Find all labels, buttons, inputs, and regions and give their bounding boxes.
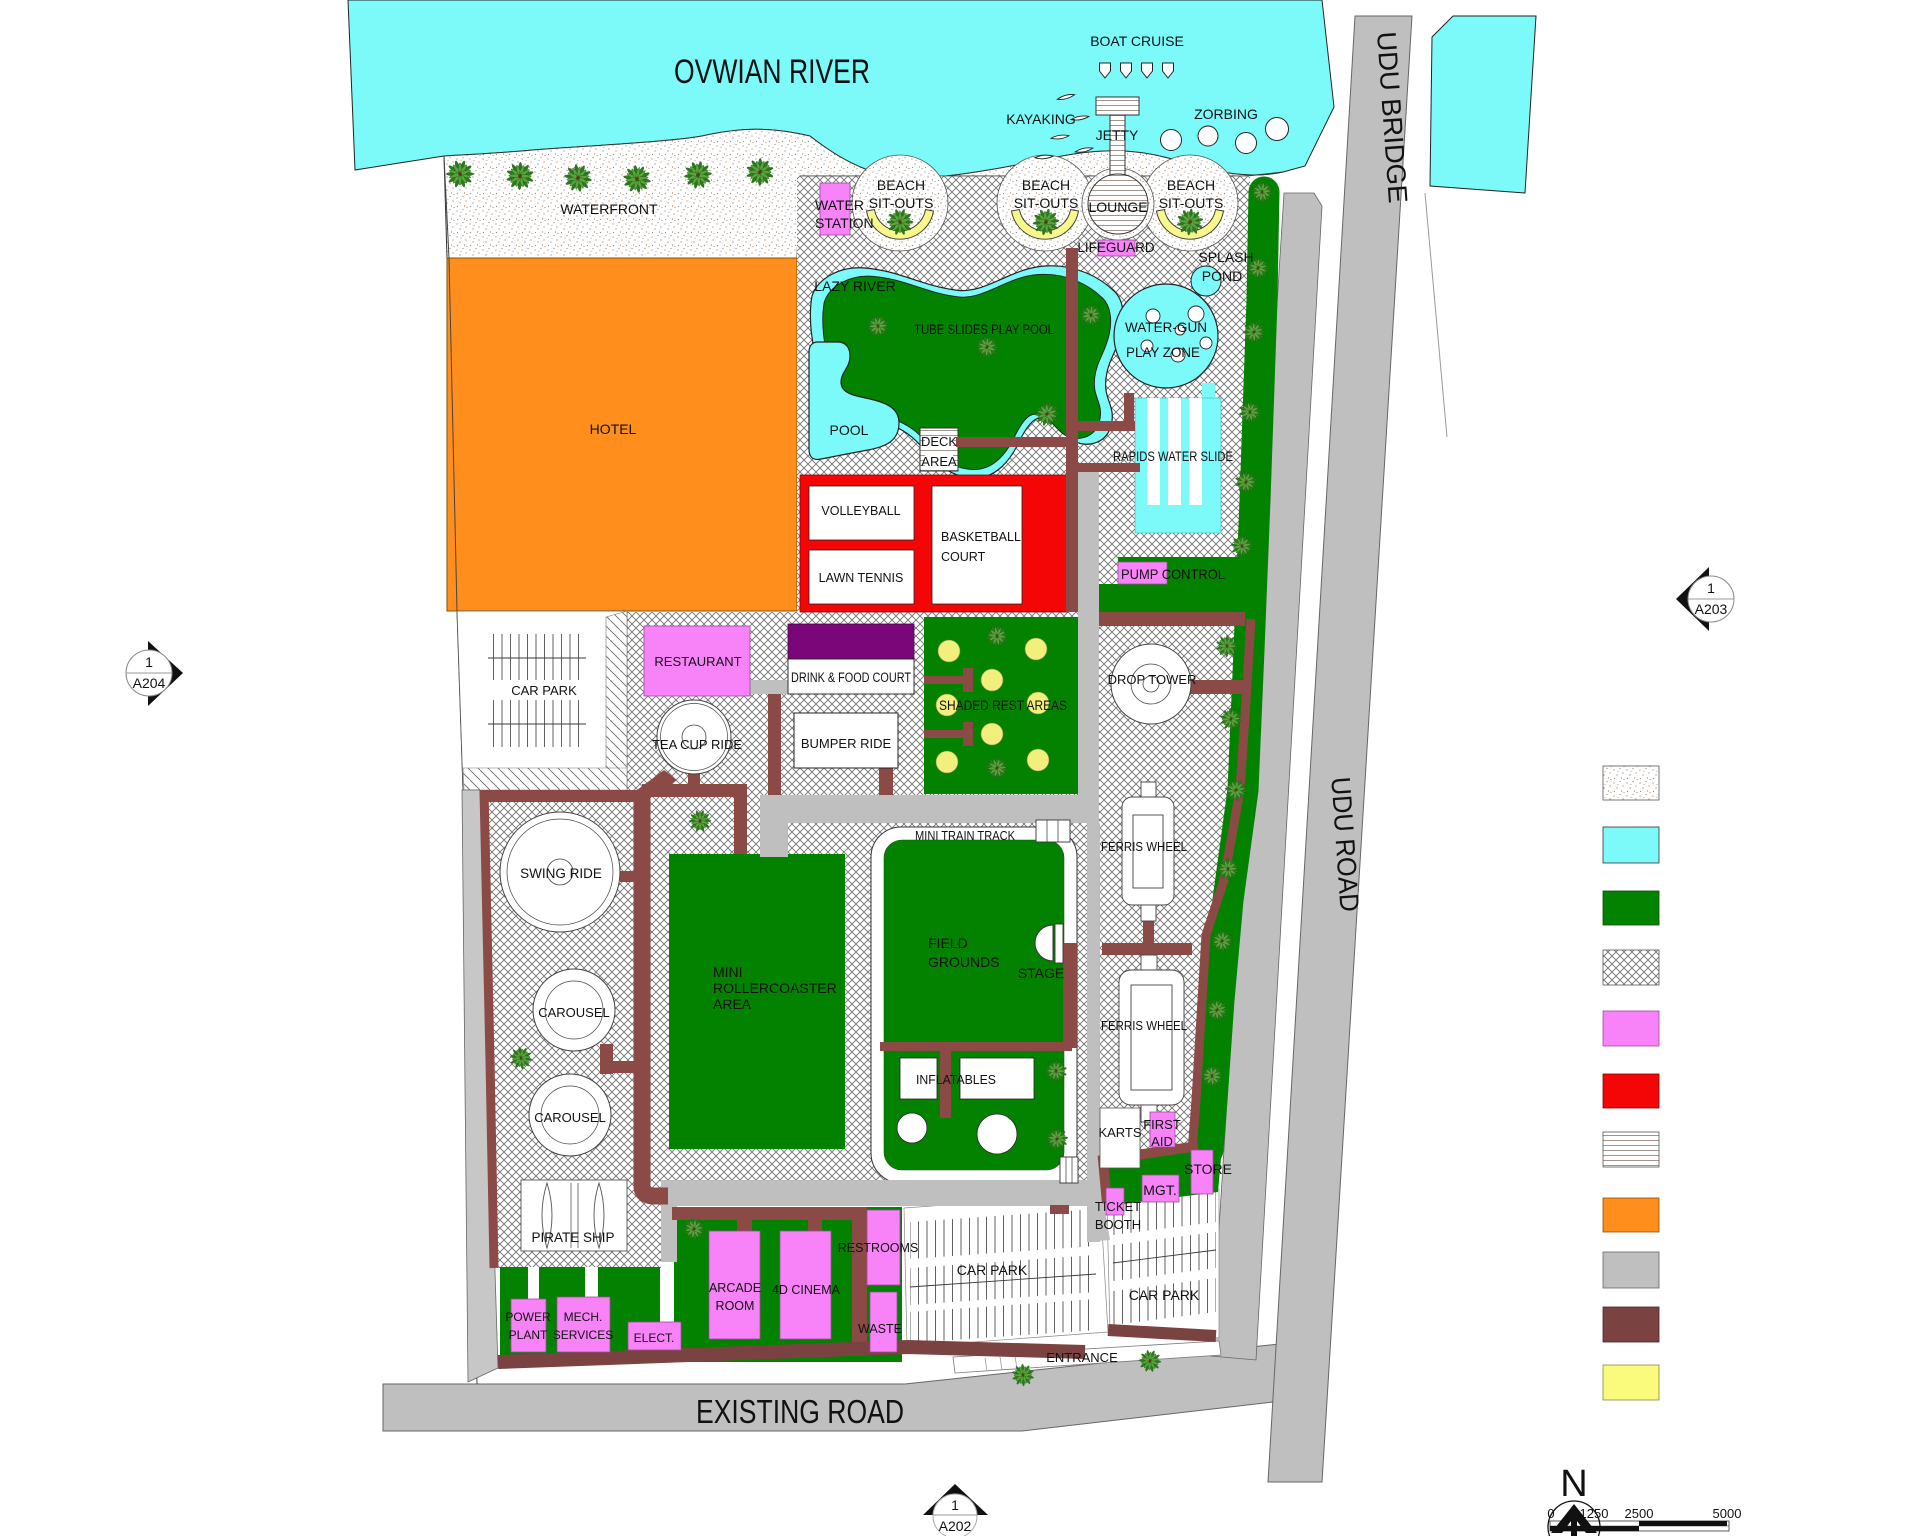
svg-text:INFLATABLES: INFLATABLES bbox=[916, 1072, 996, 1087]
svg-text:SIT-OUTS: SIT-OUTS bbox=[869, 195, 934, 211]
svg-text:1: 1 bbox=[951, 1497, 959, 1513]
svg-text:SPLASH: SPLASH bbox=[1198, 249, 1253, 265]
svg-text:A202: A202 bbox=[939, 1518, 972, 1534]
svg-text:BASKETBALL: BASKETBALL bbox=[941, 530, 1021, 544]
svg-text:A204: A204 bbox=[133, 675, 166, 691]
svg-text:POWER: POWER bbox=[505, 1310, 551, 1324]
svg-text:PIRATE SHIP: PIRATE SHIP bbox=[531, 1230, 614, 1245]
svg-text:ZORBING: ZORBING bbox=[1194, 106, 1258, 122]
svg-text:DECK: DECK bbox=[921, 434, 957, 449]
svg-text:PUMP CONTROL: PUMP CONTROL bbox=[1121, 566, 1225, 582]
svg-text:BEACH: BEACH bbox=[877, 177, 925, 193]
svg-text:CAR PARK: CAR PARK bbox=[1129, 1287, 1200, 1303]
svg-text:SIT-OUTS: SIT-OUTS bbox=[1014, 195, 1079, 211]
svg-text:WATERFRONT: WATERFRONT bbox=[560, 201, 658, 217]
svg-text:WASTE: WASTE bbox=[858, 1322, 902, 1336]
svg-text:MINI TRAIN TRACK: MINI TRAIN TRACK bbox=[915, 828, 1015, 843]
svg-text:SWING RIDE: SWING RIDE bbox=[520, 866, 602, 881]
svg-text:SHADED REST AREAS: SHADED REST AREAS bbox=[939, 698, 1067, 713]
svg-text:STAGE: STAGE bbox=[1018, 965, 1064, 981]
svg-text:PLAY ZONE: PLAY ZONE bbox=[1126, 344, 1200, 360]
svg-text:HOTEL: HOTEL bbox=[590, 421, 637, 437]
svg-text:AREA: AREA bbox=[921, 454, 957, 469]
svg-text:CAR PARK: CAR PARK bbox=[957, 1262, 1028, 1278]
svg-text:LAWN TENNIS: LAWN TENNIS bbox=[819, 571, 904, 585]
svg-text:STORE: STORE bbox=[1184, 1161, 1232, 1177]
svg-text:KAYAKING: KAYAKING bbox=[1006, 111, 1076, 127]
svg-text:1: 1 bbox=[1707, 580, 1715, 596]
svg-text:ROOM: ROOM bbox=[716, 1299, 755, 1313]
svg-text:0: 0 bbox=[1547, 1506, 1554, 1521]
svg-text:DROP TOWER: DROP TOWER bbox=[1108, 672, 1197, 687]
svg-text:RAPIDS WATER SLIDE: RAPIDS WATER SLIDE bbox=[1113, 448, 1233, 464]
svg-text:SIT-OUTS: SIT-OUTS bbox=[1159, 195, 1224, 211]
svg-text:LIFEGUARD: LIFEGUARD bbox=[1077, 240, 1155, 255]
svg-text:DRINK & FOOD COURT: DRINK & FOOD COURT bbox=[791, 670, 911, 685]
svg-text:POOL: POOL bbox=[830, 422, 869, 438]
svg-text:BUMPER RIDE: BUMPER RIDE bbox=[801, 736, 892, 751]
svg-text:1: 1 bbox=[145, 654, 153, 670]
svg-text:ENTRANCE: ENTRANCE bbox=[1046, 1350, 1118, 1365]
svg-text:TEA CUP RIDE: TEA CUP RIDE bbox=[652, 737, 742, 752]
svg-text:5000: 5000 bbox=[1713, 1506, 1742, 1521]
svg-text:FERRIS WHEEL: FERRIS WHEEL bbox=[1101, 1018, 1187, 1033]
svg-text:VOLLEYBALL: VOLLEYBALL bbox=[821, 504, 900, 518]
svg-text:A203: A203 bbox=[1695, 601, 1728, 617]
svg-text:OVWIAN RIVER: OVWIAN RIVER bbox=[674, 53, 870, 91]
svg-text:4D CINEMA: 4D CINEMA bbox=[772, 1283, 841, 1297]
svg-text:BEACH: BEACH bbox=[1167, 177, 1215, 193]
svg-text:EXISTING ROAD: EXISTING ROAD bbox=[696, 1393, 904, 1430]
svg-text:2500: 2500 bbox=[1625, 1506, 1654, 1521]
svg-text:FIRST: FIRST bbox=[1143, 1117, 1181, 1132]
svg-text:ROLLERCOASTER: ROLLERCOASTER bbox=[713, 980, 837, 996]
svg-text:SERVICES: SERVICES bbox=[553, 1328, 613, 1342]
svg-text:STATION: STATION bbox=[815, 215, 874, 231]
svg-text:JETTY: JETTY bbox=[1096, 127, 1139, 143]
svg-text:CAR PARK: CAR PARK bbox=[511, 683, 577, 698]
svg-text:POND: POND bbox=[1202, 268, 1242, 284]
svg-text:ARCADE: ARCADE bbox=[709, 1281, 761, 1295]
svg-text:TUBE SLIDES PLAY POOL: TUBE SLIDES PLAY POOL bbox=[914, 321, 1054, 337]
svg-text:MGT.: MGT. bbox=[1143, 1182, 1176, 1198]
svg-text:WATER: WATER bbox=[815, 197, 864, 213]
svg-text:GROUNDS: GROUNDS bbox=[928, 954, 1000, 970]
svg-text:COURT: COURT bbox=[941, 550, 986, 564]
svg-text:KARTS: KARTS bbox=[1098, 1125, 1141, 1140]
svg-text:BOOTH: BOOTH bbox=[1095, 1217, 1141, 1232]
svg-text:N: N bbox=[1560, 1463, 1587, 1505]
svg-text:CAROUSEL: CAROUSEL bbox=[538, 1005, 610, 1020]
svg-text:FIELD: FIELD bbox=[928, 935, 968, 951]
svg-text:LAZY RIVER: LAZY RIVER bbox=[814, 278, 895, 294]
svg-text:BOAT CRUISE: BOAT CRUISE bbox=[1090, 33, 1184, 49]
svg-text:FERRIS WHEEL: FERRIS WHEEL bbox=[1101, 839, 1187, 854]
svg-text:MECH.: MECH. bbox=[564, 1310, 603, 1324]
svg-text:MINI: MINI bbox=[713, 964, 743, 980]
svg-text:TICKET: TICKET bbox=[1095, 1199, 1141, 1214]
svg-text:WATER-GUN: WATER-GUN bbox=[1125, 319, 1207, 335]
svg-text:PLANT: PLANT bbox=[509, 1328, 548, 1342]
svg-text:BEACH: BEACH bbox=[1022, 177, 1070, 193]
svg-text:LOUNGE: LOUNGE bbox=[1088, 199, 1147, 215]
svg-text:ELECT.: ELECT. bbox=[634, 1331, 675, 1345]
svg-text:RESTAURANT: RESTAURANT bbox=[654, 654, 741, 669]
svg-text:RESTROOMS: RESTROOMS bbox=[838, 1241, 919, 1255]
svg-text:CAROUSEL: CAROUSEL bbox=[534, 1110, 606, 1125]
svg-text:AREA: AREA bbox=[713, 996, 752, 1012]
svg-text:AID: AID bbox=[1151, 1134, 1173, 1149]
